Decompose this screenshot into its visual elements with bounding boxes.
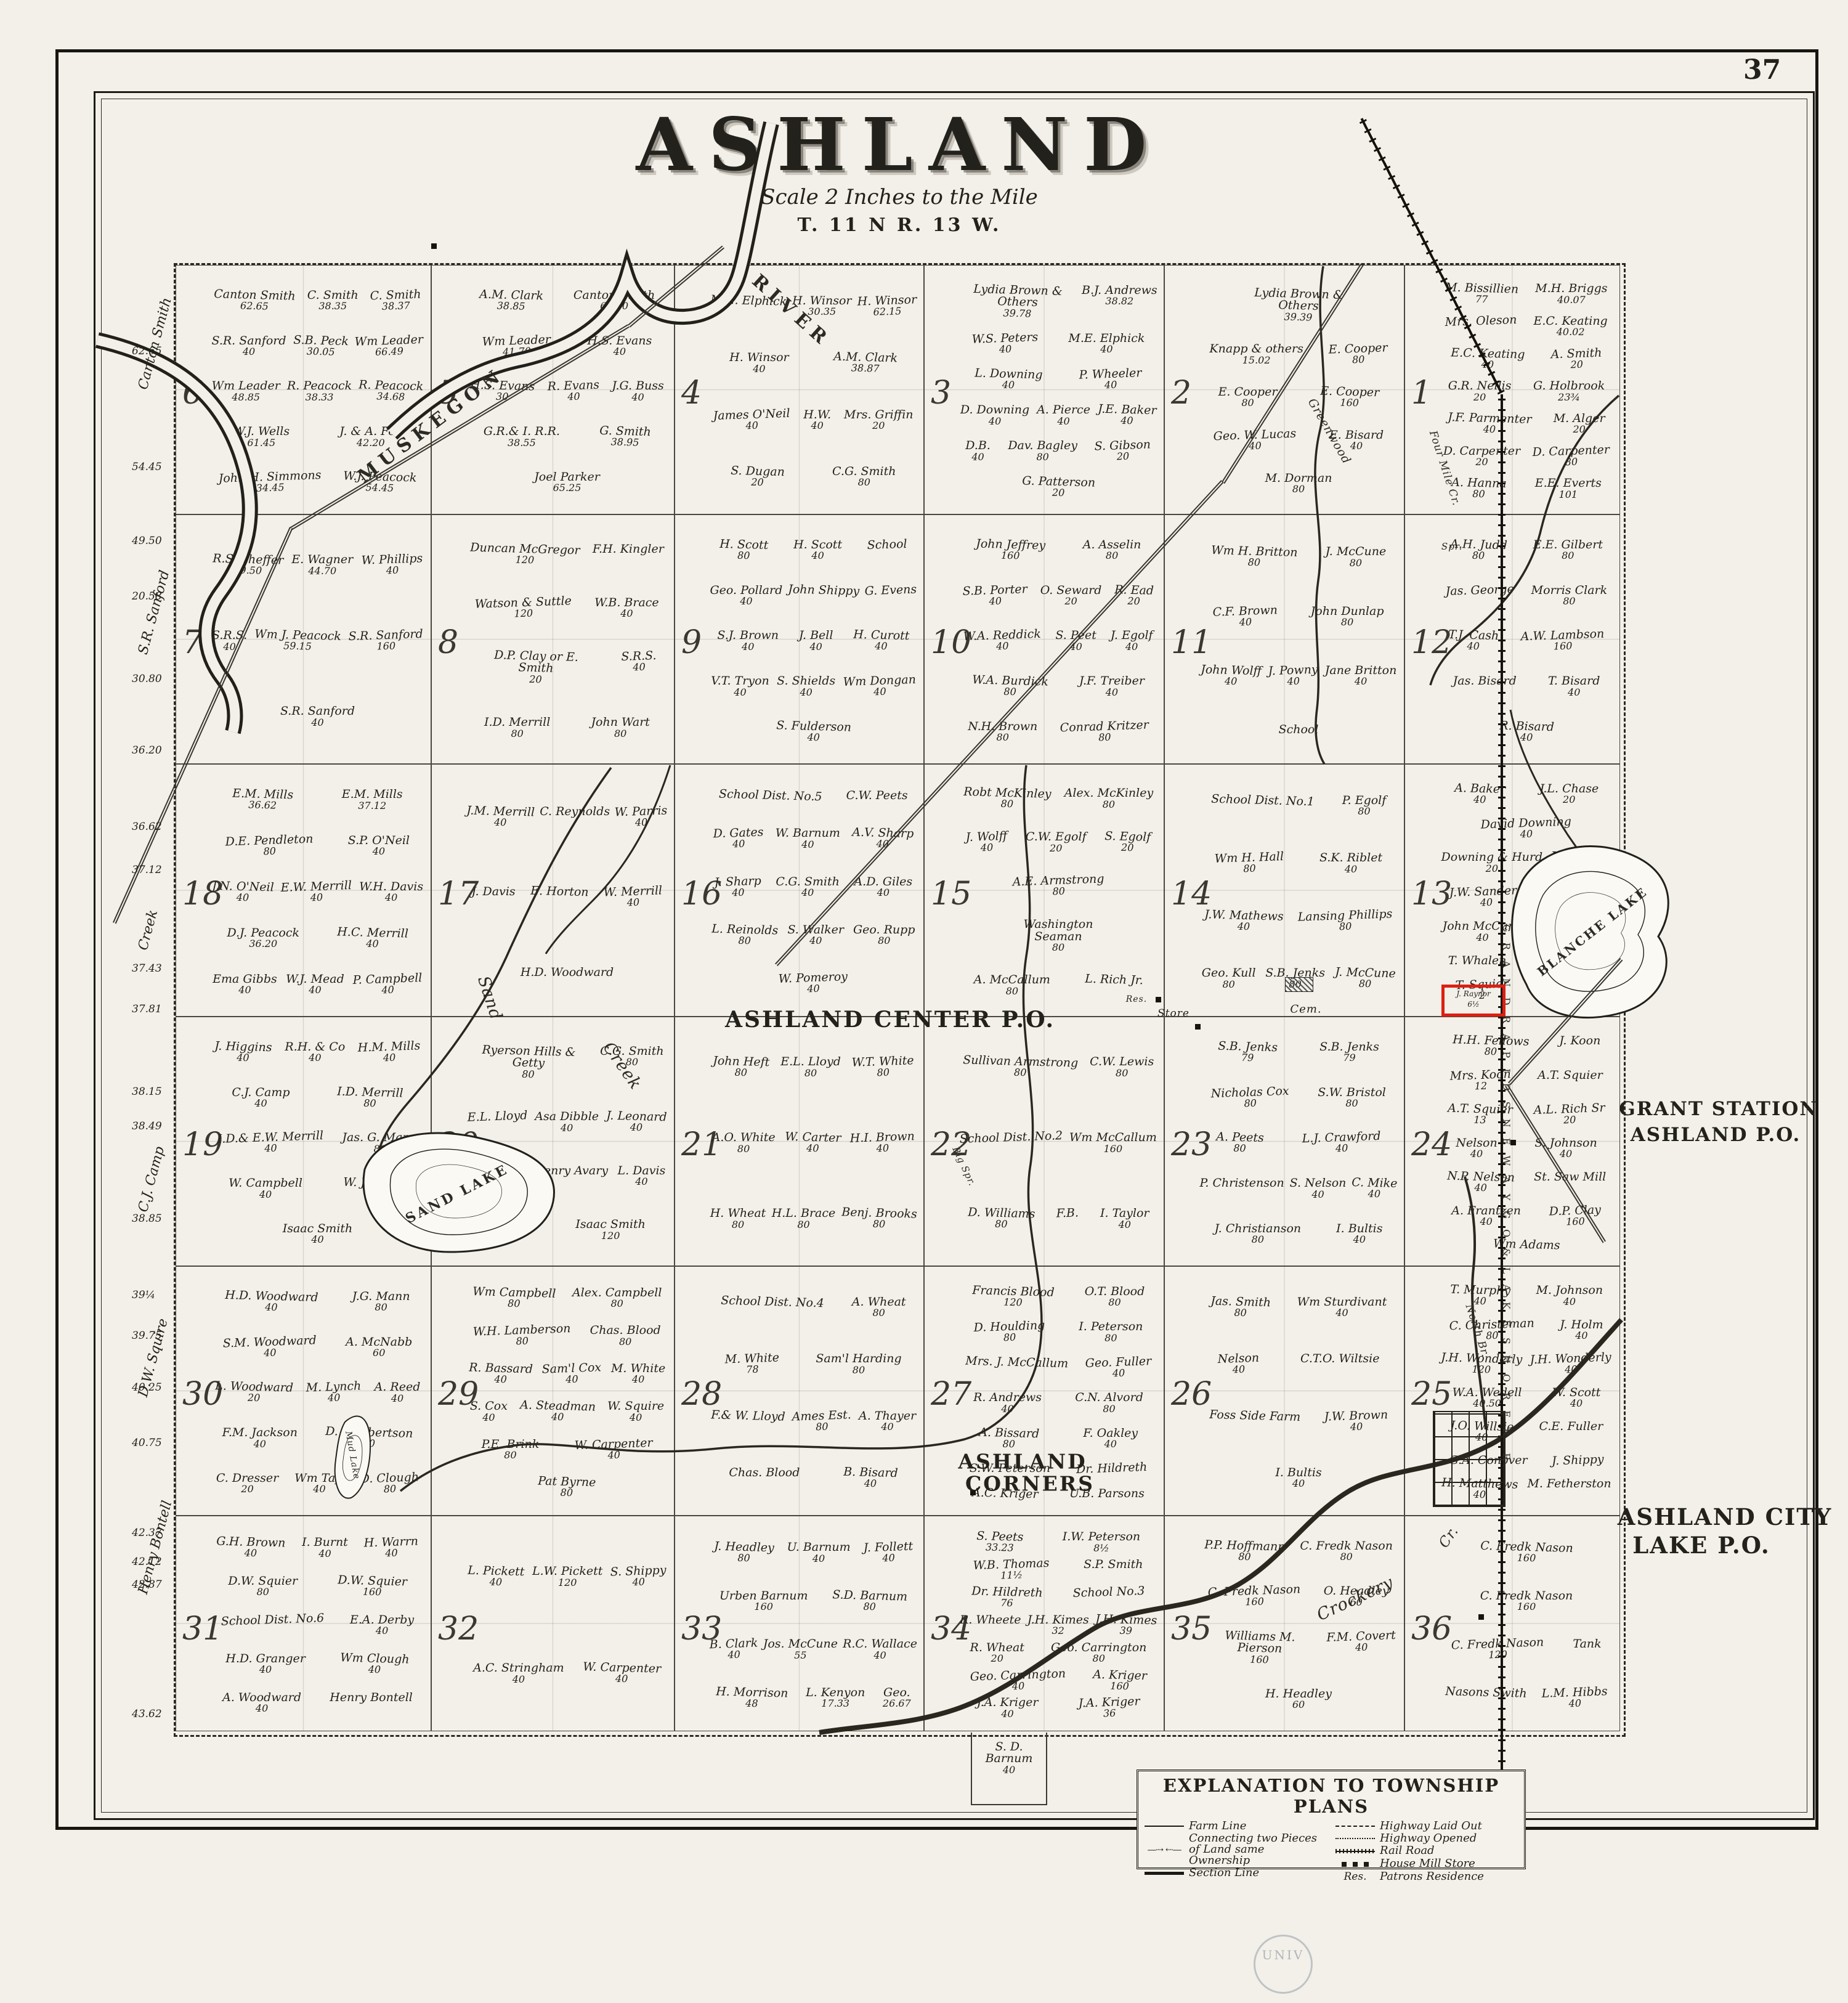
parcel: Wm Sturdivant40	[1297, 1296, 1387, 1318]
section-number: 27	[931, 1376, 971, 1413]
parcel-acreage: 40	[776, 888, 839, 898]
edge-lot-acreage: 54.45	[132, 461, 162, 473]
parcel: S.K. Riblet40	[1319, 852, 1382, 874]
section-number: 31	[182, 1611, 223, 1647]
parcel-owner: H.D. Woodward	[521, 967, 614, 978]
legend-label: Rail Road	[1380, 1845, 1435, 1856]
map-section-28: 28School Dist. No.4A. Wheat80M. White78S…	[675, 1266, 924, 1516]
map-section-11: 11Wm H. Britton80J. McCune80C.F. Brown40…	[1164, 514, 1404, 764]
legend-label: Farm Line	[1189, 1821, 1246, 1832]
parcel: W.T. White80	[851, 1055, 914, 1080]
parcel-owner: J.G. Buss	[612, 380, 663, 392]
parcel: I. Bultis40	[1336, 1223, 1382, 1245]
parcel-acreage: 160	[1480, 1602, 1573, 1612]
parcel-acreage: 40	[364, 1548, 419, 1560]
parcel: T.J. Cash40	[1448, 629, 1499, 652]
legend-square	[1342, 1862, 1347, 1867]
edge-lot-acreage: 40.25	[132, 1381, 162, 1394]
parcel: Nasons Swith	[1445, 1686, 1526, 1710]
parcel: Sam'l Cox40	[541, 1362, 602, 1386]
parcel: J.H. Kimes32	[1027, 1614, 1089, 1636]
parcel: P. Egolf80	[1342, 795, 1387, 817]
section-number: 10	[931, 624, 971, 661]
parcel: School Dist. No.5	[719, 789, 822, 803]
section-number: 8	[438, 624, 458, 661]
parcel-acreage: 40	[843, 1651, 917, 1661]
section-number: 1	[1411, 375, 1432, 412]
parcel-acreage: 40	[1552, 1399, 1601, 1409]
parcel-acreage: 80	[968, 733, 1037, 743]
parcel-owner: E. Wagner	[291, 554, 353, 566]
parcel-owner: I. Burnt	[302, 1537, 348, 1548]
parcel: Lydia Brown & Others39.78	[959, 283, 1077, 320]
parcel-owner: Jas. G. Mann	[342, 1132, 418, 1144]
parcel: H. Wheat80	[710, 1208, 766, 1230]
parcel: Nelson40	[1217, 1352, 1260, 1376]
parcel: A. Kriger160	[1092, 1668, 1147, 1692]
parcel-acreage: 60	[346, 1348, 412, 1359]
parcel: School Dist. No.2	[960, 1130, 1064, 1156]
parcel-owner: E.E. Everts	[1535, 477, 1602, 489]
parcel: Mrs. Griffin20	[844, 409, 913, 431]
parcel: A.D. Giles40	[854, 876, 912, 898]
parcel: R. Wheat20	[970, 1642, 1024, 1664]
parcel: R. Evans40	[547, 380, 600, 404]
parcel: A.L. Rich Sr20	[1533, 1102, 1605, 1127]
legend-item: Res.Patrons Residence	[1335, 1871, 1518, 1883]
section-number: 15	[931, 876, 971, 912]
parcel: R. Peacock38.33	[287, 380, 352, 402]
parcel-owner: Isaac Smith	[575, 1219, 646, 1230]
parcel-acreage: 40	[1218, 1364, 1260, 1376]
parcel-acreage: 40	[232, 1099, 290, 1109]
parcel-acreage: 20	[1040, 596, 1102, 607]
map-section-22: 22Sullivan Armstrong80C.W. Lewis80School…	[924, 1017, 1164, 1266]
parcel: M. White40	[611, 1363, 665, 1385]
parcel-acreage: 40	[803, 421, 831, 431]
parcel: L.M. Hibbs40	[1542, 1686, 1608, 1710]
parcel-acreage: 40	[548, 391, 600, 404]
section-number: 25	[1411, 1376, 1452, 1413]
parcel: J.W. Brown40	[1324, 1409, 1388, 1434]
parcel-acreage: 40	[966, 842, 1008, 854]
parcel-acreage: 160	[719, 1602, 808, 1612]
parcel-acreage: 38.95	[599, 437, 650, 449]
parcel: School No.3	[1072, 1585, 1145, 1610]
parcel: W. Campbell40	[229, 1177, 302, 1200]
parcel-acreage: 80	[1533, 551, 1603, 561]
edge-lot-acreage: 20.58	[132, 590, 162, 603]
library-stamp: UNIV	[1254, 1935, 1313, 1994]
map-section-6: 6Canton Smith62.65C. Smith38.35C. Smith3…	[176, 265, 431, 514]
parcel-acreage: 40	[211, 347, 286, 357]
parcel-acreage: 40	[1448, 641, 1499, 653]
parcel-acreage: 80	[1083, 551, 1141, 561]
parcel: H. Warrn40	[364, 1536, 419, 1560]
parcel-acreage: 80	[1008, 452, 1077, 463]
parcel-acreage: 40	[973, 1404, 1042, 1415]
legend-item: Rail Road	[1335, 1845, 1518, 1856]
parcel-acreage: 32	[1027, 1626, 1089, 1636]
section-number: 28	[681, 1376, 722, 1413]
parcel: D. Lambertson40	[325, 1426, 413, 1450]
parcel-acreage: 36.20	[227, 939, 299, 949]
parcel: A.E. Armstrong80	[1012, 874, 1104, 899]
parcel-owner: School Dist. No.1	[1211, 793, 1315, 808]
parcel: I. Taylor40	[1100, 1208, 1149, 1230]
parcel-owner: J. Shippy	[1551, 1454, 1603, 1468]
parcel-owner: E.M. Mills	[342, 789, 403, 800]
parcel: G. Smith38.95	[599, 425, 651, 449]
parcel: R. Peacock34.68	[359, 380, 424, 404]
parcel: Watson & Suttle120	[475, 595, 572, 621]
parcel: D.J. Peacock36.20	[227, 927, 299, 949]
parcel: C. Fredk Nason160	[1208, 1584, 1302, 1609]
parcel: M. Johnson40	[1536, 1285, 1603, 1307]
parcel-owner: Williams M. Pierson	[1201, 1629, 1319, 1656]
parcel: W.H. Lamberson80	[473, 1323, 572, 1349]
parcel-acreage: 40	[864, 1553, 914, 1565]
map-section-19: 19J. Higgins40R.H. & Co40H.M. Mills40C.J…	[176, 1017, 431, 1266]
parcel: Lydia Brown & Others39.39	[1239, 286, 1357, 324]
parcel: E.E. Gilbert80	[1533, 539, 1603, 561]
parcel-owner: Ryerson Hills & Getty	[470, 1044, 588, 1071]
parcel: Wm Pratt40	[1547, 886, 1603, 908]
parcel-owner: Chas. Blood	[729, 1467, 800, 1479]
parcel: C. Mike40	[1352, 1177, 1398, 1200]
parcel: H.I. Brown40	[850, 1131, 915, 1156]
parcel-acreage: 40	[1352, 1189, 1398, 1201]
parcel-acreage: 80	[1318, 1099, 1386, 1109]
parcel: S.R.S.40	[621, 650, 657, 686]
parcel: H.W.40	[803, 409, 831, 431]
parcel-acreage: 40	[294, 1484, 344, 1495]
legend-label: Section Line	[1189, 1867, 1259, 1879]
parcel-acreage: 40	[710, 1649, 758, 1662]
parcel: J. Follett40	[863, 1541, 914, 1565]
parcel-acreage: 80	[1531, 596, 1607, 607]
parcel-acreage: 40	[222, 1704, 301, 1714]
parcel-owner: Nasons Swith	[1445, 1686, 1527, 1700]
parcel-owner: I. Peterson	[1079, 1321, 1143, 1333]
parcel-acreage: 44.70	[291, 566, 353, 577]
parcel-acreage: 79	[1319, 1053, 1379, 1063]
parcel-acreage: 20	[216, 1484, 278, 1495]
parcel: G.R.& I. R.R.38.55	[484, 426, 560, 448]
parcel-acreage: 40	[1325, 676, 1397, 687]
parcel: J. Christianson80	[1215, 1223, 1302, 1245]
parcel: S.R. Sanford160	[348, 628, 423, 653]
parcel: W. Jackson40	[343, 1177, 407, 1201]
parcel-owner: Downing & Hurd	[1441, 851, 1542, 863]
map-section-17: 17J.M. Merrill40C. ReynoldsW. Parris40J.…	[431, 764, 675, 1017]
parcel-acreage: 80	[591, 729, 650, 739]
parcel: Jas. Smith80	[1210, 1296, 1271, 1320]
parcel: I.D. Merrill80	[337, 1086, 403, 1110]
parcel: M.E. Elphick40	[1068, 333, 1145, 355]
parcel: H.L. Brace80	[772, 1208, 836, 1230]
map-section-32: 32L. Pickett40L.W. Pickett120S. Shippy40…	[431, 1516, 675, 1731]
parcel: Duncan McGregor120	[470, 542, 580, 567]
map-section-8: 8Duncan McGregor120F.H. KinglerWatson & …	[431, 514, 675, 764]
parcel: S.R. Sanford40	[280, 705, 355, 728]
parcel-owner: J. Raynor	[1445, 990, 1502, 998]
legend-column-left: Farm Line—⇢ ⇠—Connecting two Pieces of L…	[1145, 1819, 1327, 1884]
parcel-owner: A. McCallum	[974, 974, 1050, 986]
parcel: S.P. Smith	[1084, 1559, 1143, 1581]
parcel-acreage: 40	[1547, 898, 1603, 909]
parcel-owner: D.P. Clay or E. Smith	[477, 649, 595, 676]
parcel: S.D. Barnum80	[832, 1589, 908, 1614]
map-section-18: 18E.M. Mills36.62E.M. Mills37.12D.E. Pen…	[176, 764, 431, 1017]
parcel: R. Bisard40	[1499, 720, 1554, 744]
parcel-owner: Jos. McCune	[763, 1638, 838, 1650]
parcel: W.S. Peters40	[971, 331, 1039, 356]
parcel-owner: F.B.	[1056, 1208, 1079, 1221]
parcel-acreage: 40	[375, 1394, 421, 1404]
parcel: C.W. Peets	[846, 790, 908, 802]
section-number: 23	[1171, 1126, 1212, 1163]
building-square	[431, 243, 437, 249]
parcel: A.M. Clark38.87	[833, 351, 898, 375]
legend-square	[1364, 1862, 1369, 1867]
parcel: B.J. Andrews38.82	[1082, 285, 1157, 319]
parcel: A. Asselin80	[1083, 539, 1141, 561]
parcel-acreage: 40	[977, 1709, 1039, 1720]
parcel: Wm Taft40	[294, 1473, 344, 1495]
edge-lot-acreage: 42.87	[132, 1578, 162, 1591]
parcel-owner: W. Barnum	[776, 827, 840, 839]
map-legend: EXPLANATION TO TOWNSHIP PLANS Farm Line—…	[1137, 1769, 1526, 1869]
map-section-31: 31G.H. Brown40I. Burnt40H. Warrn40D.W. S…	[176, 1516, 431, 1731]
parcel: J. Powny40	[1268, 664, 1318, 688]
parcel: J.L. Chase20	[1539, 783, 1599, 805]
parcel: Knapp & others15.02	[1209, 343, 1303, 365]
place-ashland-center-po: ASHLAND CENTER P.O.	[725, 1007, 1055, 1033]
parcel: F.B.	[1056, 1208, 1079, 1230]
parcel-owner: Geo. Kull	[1202, 967, 1256, 979]
parcel-acreage: 15.02	[1209, 356, 1303, 366]
parcel: Chas. Blood	[729, 1467, 800, 1489]
parcel: Canton Smith69.90	[573, 290, 655, 312]
parcel: John Heft80	[713, 1055, 770, 1079]
parcel-owner: Mrs. Griffin	[844, 409, 913, 421]
parcel-acreage: 40	[1560, 1331, 1603, 1341]
parcel: John Jeffrey160	[975, 538, 1045, 562]
parcel-acreage: 40	[799, 642, 833, 652]
parcel: Wm Leader41.70	[482, 334, 551, 359]
legend-label: Connecting two Pieces of Land same Owner…	[1189, 1833, 1327, 1866]
parcel: E. Wagner44.70	[291, 554, 353, 576]
parcel: S.J. Brown40	[717, 630, 779, 652]
parcel-owner: M. Fetherston	[1527, 1478, 1611, 1490]
parcel-acreage: 40	[1499, 732, 1554, 744]
parcel: I.D.& E.W. Merrill40	[217, 1130, 324, 1156]
parcel: Ryerson Hills & Getty80	[470, 1044, 588, 1081]
parcel-owner: Wm McCallum	[1069, 1132, 1157, 1144]
section-number: 29	[438, 1376, 479, 1413]
parcel-acreage: 40	[793, 551, 842, 561]
parcel-owner: C.E. Fuller	[1539, 1421, 1603, 1432]
parcel: S. Shippy40	[610, 1565, 667, 1589]
parcel: A. Peets80	[1216, 1131, 1265, 1155]
parcel: H. Curott40	[853, 629, 910, 653]
parcel: Ema Gibbs40	[213, 973, 277, 996]
parcel: F. Oakley40	[1083, 1428, 1138, 1450]
parcel: J. Holm40	[1560, 1319, 1603, 1341]
parcel-owner: G.R.& I. R.R.	[484, 426, 560, 437]
parcel-acreage: 40	[343, 1188, 407, 1201]
parcel-acreage: 40	[777, 688, 835, 698]
parcel-owner: Knapp & others	[1209, 343, 1303, 355]
parcel-acreage: 80	[538, 1487, 596, 1499]
parcel-owner: School Dist. No.6	[221, 1612, 324, 1628]
parcel: N.H. Brown80	[968, 721, 1037, 743]
parcel-acreage: 80	[342, 1144, 418, 1155]
parcel: D.B.40	[965, 440, 991, 462]
parcel-owner: J. Egolf	[1111, 630, 1153, 641]
map-section-34: 34S. Peets33.23I.W. Peterson8½W.B. Thoma…	[924, 1516, 1164, 1731]
parcel: W. Squire40	[607, 1400, 664, 1423]
parcel: M. Lynch40	[306, 1381, 362, 1405]
parcel: C.G. Smith40	[776, 876, 839, 898]
parcel-owner: C.G. Smith	[776, 876, 839, 888]
parcel-acreage: 80	[1300, 1552, 1393, 1562]
parcel: C.N. Alvord80	[1075, 1392, 1143, 1414]
parcel-acreage: 80	[572, 1299, 662, 1309]
parcel-acreage: 40	[488, 1230, 527, 1241]
parcel: O. Seward20	[1040, 585, 1102, 607]
parcel-owner: J. Bell	[799, 630, 833, 641]
parcel: Isaac Smith120	[575, 1219, 646, 1241]
parcel-acreage: 40	[468, 1577, 525, 1588]
parcel: H. Scott80	[719, 538, 769, 562]
parcel: D. Clough80	[360, 1471, 419, 1495]
parcel: S. Cox40	[488, 1218, 527, 1241]
parcel-owner: C.W. Lewis	[1090, 1056, 1154, 1068]
parcel: T. Bisard40	[1548, 675, 1600, 697]
parcel: Sam'l Harding80	[816, 1353, 901, 1375]
parcel-acreage: 40	[787, 1554, 850, 1564]
parcel-owner: R. Peacock	[287, 380, 352, 392]
parcel-acreage: 40	[350, 1626, 414, 1636]
parcel-acreage: 48.85	[212, 392, 280, 403]
parcel-acreage: 61.45	[233, 438, 290, 449]
parcel-acreage: 20	[970, 1654, 1024, 1664]
parcel: Wm H. Hall80	[1214, 851, 1284, 876]
section-number: 19	[182, 1126, 223, 1163]
parcel: J.H. Kimes39	[1095, 1613, 1157, 1637]
parcel-acreage: 80	[482, 1450, 540, 1461]
edge-lot-acreage: 36.62	[132, 821, 162, 833]
parcel-owner: T. Bisard	[1548, 675, 1600, 687]
parcel: L. Kenyon17.33	[806, 1687, 865, 1709]
parcel: A. McCallum80	[974, 974, 1050, 996]
map-section-7: 7R.S. Sheffer49.50E. Wagner44.70W. Phill…	[176, 514, 431, 764]
parcel-acreage: 37.12	[342, 801, 403, 811]
parcel-owner: Wm Pratt	[1547, 886, 1603, 898]
legend-item: —⇢ ⇠—Connecting two Pieces of Land same …	[1145, 1833, 1327, 1866]
parcel: G. Evens	[865, 583, 918, 607]
atlas-scan-page: { "page":{"number":"37","title":"ASHLAND…	[0, 0, 1848, 2003]
map-section-15: 15Robt McKinley80Alex. McKinley80J. Wolf…	[924, 764, 1164, 1017]
parcel-owner: S.R. Sanford	[280, 705, 355, 717]
building-square	[1195, 1024, 1201, 1030]
parcel: E.E. Everts101	[1535, 477, 1602, 500]
parcel: J.W. Mathews40	[1204, 909, 1283, 933]
parcel: H. Morrison48	[716, 1686, 788, 1710]
map-section-23: 23S.B. Jenks79S.B. Jenks79Nicholas Cox80…	[1164, 1017, 1404, 1266]
store-label: Store	[1157, 1007, 1189, 1020]
parcel-acreage: 40	[1275, 1479, 1321, 1489]
parcel: S.W. Bristol80	[1318, 1087, 1386, 1109]
parcel: S. Dugan20	[731, 465, 785, 489]
legend-label: Highway Opened	[1380, 1833, 1477, 1844]
parcel-owner: C.W. Egolf	[1026, 831, 1087, 843]
section-number: 24	[1411, 1126, 1452, 1163]
parcel: Asa Dibble40	[535, 1111, 599, 1133]
parcel-owner: E. Horton	[530, 885, 589, 899]
parcel: S.B. Jenks79	[1218, 1040, 1278, 1064]
parcel-owner: C.N. Alvord	[1075, 1392, 1143, 1404]
parcel: M. Fetherston	[1527, 1478, 1611, 1500]
section-number: 16	[681, 876, 722, 912]
parcel: S.R. Sanford40	[211, 335, 286, 357]
parcel: H. Winsor62.15	[857, 294, 917, 319]
parcel: D.P. Clay or E. Smith20	[477, 649, 594, 687]
parcel: Joel Parker65.25	[534, 471, 600, 494]
parcel-owner: S.J. Brown	[717, 630, 779, 641]
parcel-owner: A.T. Squier	[1538, 1070, 1603, 1081]
parcel-acreage: 40	[611, 1375, 665, 1385]
parcel: W.A. Burdick80	[972, 674, 1049, 699]
parcel: Wm Campbell80	[472, 1286, 556, 1310]
parcel: Ames Est.80	[792, 1409, 852, 1434]
parcel: C. Fredk Nason160	[1480, 1590, 1573, 1612]
section-number: 7	[182, 624, 203, 661]
parcel-acreage: 40	[607, 1413, 664, 1423]
parcel-acreage: 40	[1079, 688, 1145, 698]
parcel: C.T.O. Wiltsie	[1300, 1353, 1379, 1375]
parcel-acreage: 80	[1079, 1333, 1143, 1344]
parcel-acreage: 80	[1215, 1235, 1302, 1245]
parcel-owner: S. Nelson	[1290, 1177, 1347, 1189]
parcel-owner: Foss Side Farm	[1209, 1408, 1300, 1423]
parcel-acreage: 40	[1037, 416, 1090, 427]
legend-symbol-rail	[1335, 1849, 1375, 1853]
parcel: J.W. Sanders40	[1449, 885, 1523, 909]
legend-label: Highway Laid Out	[1380, 1821, 1482, 1832]
parcel-owner: School No.3	[1072, 1585, 1145, 1599]
parcel-acreage: 38.82	[1082, 296, 1157, 307]
parcel: Geo. Fuller40	[1085, 1355, 1152, 1380]
legend-symbol-line	[1145, 1826, 1184, 1827]
legend-item: House Mill Store	[1335, 1858, 1518, 1869]
parcel: M.H. Briggs40.07	[1535, 283, 1607, 305]
parcel: H.M. Mills40	[357, 1040, 421, 1065]
parcel-acreage: 40	[285, 1053, 345, 1063]
parcel: J. Higgins40	[214, 1041, 272, 1065]
parcel: P. Campbell40	[353, 972, 423, 997]
parcel-owner: C.W. Peets	[846, 790, 908, 802]
parcel-acreage: 20	[1095, 451, 1152, 463]
parcel-acreage: 40	[854, 888, 912, 898]
parcel: Alex. McKinley80	[1064, 787, 1154, 810]
parcel: C. Smith38.35	[307, 290, 359, 312]
parcel-acreage: 40	[535, 1123, 599, 1134]
parcel: H.H. Fellows80	[1452, 1034, 1529, 1059]
parcel-acreage: 40	[606, 1122, 667, 1134]
